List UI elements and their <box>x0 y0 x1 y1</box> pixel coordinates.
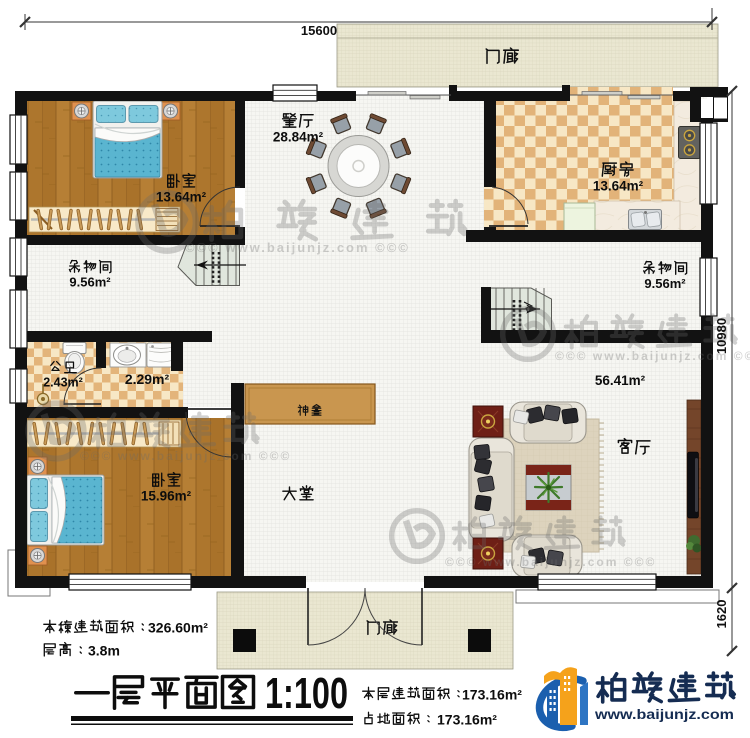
svg-text:©©© www.baijunjz.com ©©©: ©©© www.baijunjz.com ©©© <box>185 240 410 255</box>
svg-text:10980: 10980 <box>714 318 729 354</box>
svg-text:13.64m²: 13.64m² <box>593 179 644 194</box>
svg-text:www.baijunjz.com: www.baijunjz.com <box>594 707 734 722</box>
svg-text:15.96m²: 15.96m² <box>141 489 192 504</box>
svg-text:©©© www.baijunjz.com ©©©: ©©© www.baijunjz.com ©©© <box>445 555 656 569</box>
svg-text:9.56m²: 9.56m² <box>69 275 111 290</box>
svg-text:28.84m²: 28.84m² <box>273 130 324 145</box>
svg-text:13.64m²: 13.64m² <box>156 190 207 205</box>
svg-text:1620: 1620 <box>714 600 729 629</box>
svg-text:1:100: 1:100 <box>265 669 348 718</box>
svg-text:©©© www.baijunjz.com ©©©: ©©© www.baijunjz.com ©©© <box>80 449 291 463</box>
svg-text:173.16m²: 173.16m² <box>462 687 522 703</box>
svg-text:326.60m²: 326.60m² <box>148 620 208 636</box>
svg-text:15600: 15600 <box>301 23 337 38</box>
svg-text:56.41m²: 56.41m² <box>595 373 646 388</box>
svg-text:173.16m²: 173.16m² <box>437 712 497 728</box>
svg-text:9.56m²: 9.56m² <box>644 276 686 291</box>
svg-text:3.8m: 3.8m <box>88 643 120 659</box>
svg-text:2.29m²: 2.29m² <box>125 371 170 387</box>
svg-text:2.43m²: 2.43m² <box>43 376 83 390</box>
